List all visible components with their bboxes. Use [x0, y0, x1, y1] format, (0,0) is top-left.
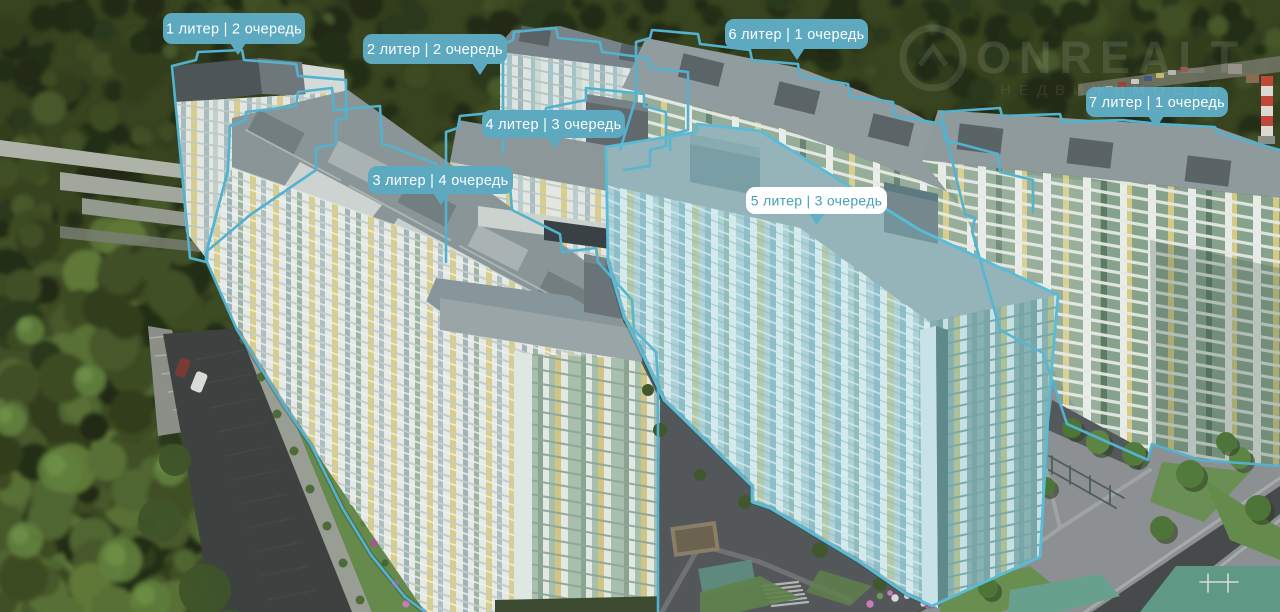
svg-text:ONREALT: ONREALT: [976, 32, 1246, 83]
svg-text:6 литер | 1 очередь: 6 литер | 1 очередь: [728, 27, 864, 43]
svg-text:2 литер | 2 очередь: 2 литер | 2 очередь: [367, 42, 503, 58]
svg-text:5 литер | 3 очередь: 5 литер | 3 очередь: [751, 193, 883, 209]
svg-text:3 литер | 4 очередь: 3 литер | 4 очередь: [372, 173, 508, 189]
svg-text:1 литер | 2 очередь: 1 литер | 2 очередь: [166, 22, 302, 38]
svg-text:4 литер | 3 очередь: 4 литер | 3 очередь: [485, 117, 621, 133]
svg-text:НЕДВИЖИМОСТЬ: НЕДВИЖИМОСТЬ: [1000, 82, 1226, 99]
